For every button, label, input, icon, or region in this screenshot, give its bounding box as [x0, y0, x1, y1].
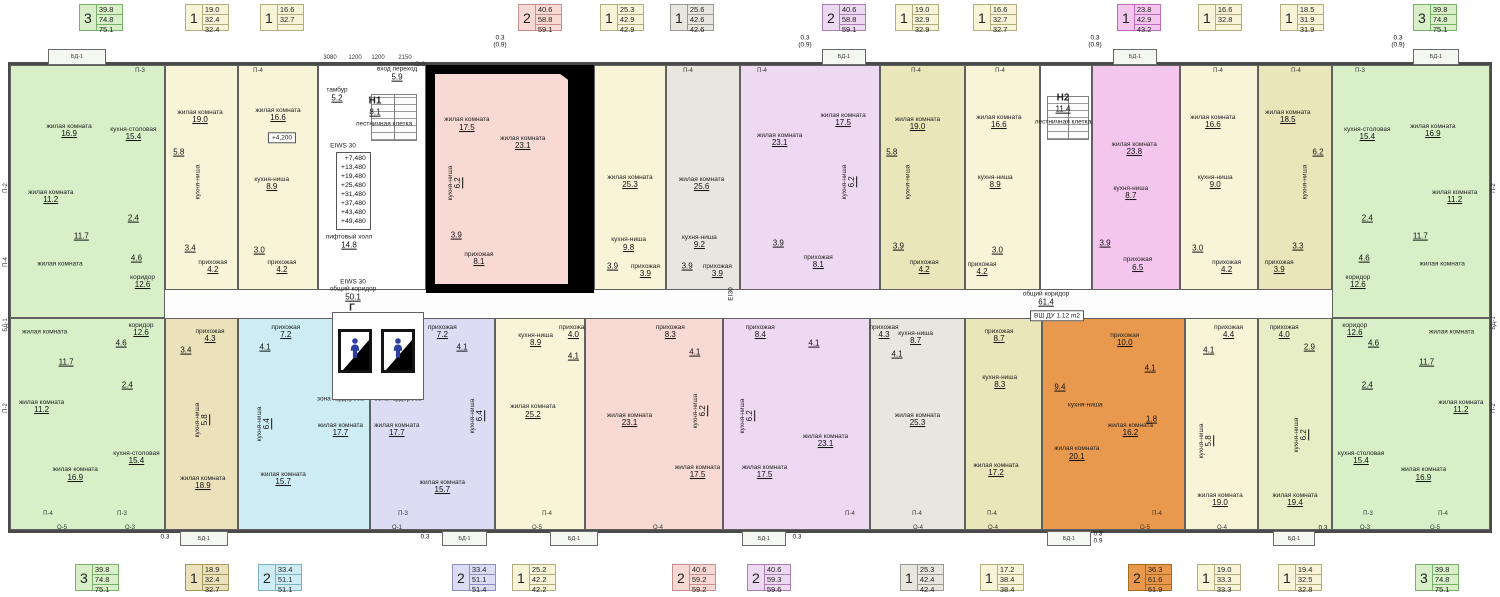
balcony-label: БД-1 [1129, 54, 1141, 60]
wall-mark: 2150 [398, 55, 411, 61]
badge-area-value: 40.6 [765, 565, 790, 575]
badge-area-value: 75.1 [1433, 585, 1458, 594]
area-value: 5.8 [201, 402, 210, 437]
room-label: 11.7 [59, 359, 74, 368]
apartment-badge[interactable]: 339.874.875.1 [75, 564, 119, 591]
area-value: 25.2 [510, 411, 555, 420]
room-label: 3.4 [180, 346, 191, 355]
label-text: 0.3 [1318, 524, 1327, 531]
label-text: 0.3 [792, 533, 801, 540]
room-label: жилая комната [37, 261, 82, 268]
wall-mark: БД-1 [3, 318, 9, 331]
area-value: 2.4 [128, 215, 139, 224]
room-label: жилая комната18.5 [1265, 109, 1310, 125]
badge-area-value: 25.6 [688, 5, 713, 15]
apartment-badge[interactable]: 116.632.732.7 [973, 4, 1017, 31]
room-label: кухня-ниша9.8 [611, 236, 646, 252]
wall-mark: О-3 [125, 525, 135, 531]
label-area: 8.1 [369, 107, 382, 116]
badge-area-value: 16.6 [1216, 5, 1241, 15]
apartment-badge[interactable]: 116.632.7 [260, 4, 304, 31]
room-label: прихожая4.2 [198, 259, 227, 275]
label-text: 0.3 [160, 533, 169, 540]
area-value: 16.6 [976, 121, 1021, 130]
plan-label: лестничная клетка [1035, 118, 1091, 125]
room-label: 5.8 [173, 149, 184, 158]
level-value: +7,480 [341, 155, 366, 164]
apartment-2k-bottom-pink[interactable]: прихожая8.34.1кухня-ниша6.2жилая комната… [585, 318, 723, 530]
room-label: 11.7 [1419, 359, 1434, 368]
apartment-badge[interactable]: 236.361.661.9 [1128, 564, 1172, 591]
area-value: 4.1 [1145, 365, 1156, 374]
label-area: 5.9 [377, 73, 417, 82]
wall-mark: П-3 [117, 511, 127, 517]
room-label: 2.4 [122, 382, 133, 391]
wall-mark: О-5 [532, 525, 542, 531]
wall-mark: П-4 [1152, 511, 1162, 517]
wall-mark: П-4 [1291, 68, 1301, 74]
apartment-badge[interactable]: 125.342.942.9 [600, 4, 644, 31]
wall-mark: О-3 [1360, 525, 1370, 531]
room-label: жилая комната17.5 [675, 464, 720, 480]
room-label: 4.6 [116, 340, 127, 349]
room-label: прихожая7.2 [428, 324, 457, 340]
area-value: 3.9 [1265, 266, 1294, 275]
area-value: 17.7 [318, 429, 363, 438]
label-text: лестничная клетка [1035, 118, 1091, 125]
apartment-badge[interactable]: 119.032.932.9 [895, 4, 939, 31]
badge-area-values: 23.842.943.2 [1134, 5, 1160, 30]
apartment-1k-top-magenta[interactable]: жилая комната23.8кухня-ниша8.73.9прихожа… [1092, 65, 1180, 290]
badge-area-value: 51.1 [276, 575, 301, 585]
plan-label: общий коридор50.1 [330, 286, 377, 303]
room-label: прихожая8.3 [656, 324, 685, 340]
room-label: жилая комната16.9 [1410, 123, 1455, 139]
wall-mark: П-4 [683, 68, 693, 74]
room-label: кухня-ниша8.9 [254, 176, 289, 192]
apartment-badge[interactable]: 123.842.943.2 [1117, 4, 1161, 31]
area-value: 15.4 [113, 457, 159, 466]
badge-area-value: 58.8 [840, 15, 865, 25]
apartment-1k-top-253[interactable]: жилая комната25.3кухня-ниша9.83.9прихожа… [594, 65, 666, 290]
label-text: EIWS 30 [330, 142, 356, 149]
area-value: 4.1 [689, 348, 700, 357]
room-label: прихожая6.5 [1123, 257, 1152, 273]
apartment-1k-top-166c[interactable]: жилая комната16.6кухня-ниша9.03.0прихожа… [1180, 65, 1258, 290]
room-label: прихожая8.7 [985, 328, 1014, 344]
badge-area-value: 19.0 [203, 5, 228, 15]
room-label: прихожая4.2 [1212, 259, 1241, 275]
room-label: жилая комната [1420, 261, 1465, 268]
apartment-1k-bottom-172[interactable]: прихожая8.7кухня-ниша8.3жилая комната17.… [965, 318, 1042, 530]
apartment-badge[interactable]: 125.342.442.4 [900, 564, 944, 591]
badge-area-values: 17.238.438.4 [997, 565, 1023, 590]
apartment-badge[interactable]: 240.658.859.1 [518, 4, 562, 31]
area-value: 19.0 [895, 123, 940, 132]
area-value: 8.7 [1113, 192, 1148, 201]
room-label: коридор12.6 [1346, 274, 1371, 290]
badge-room-count: 1 [1199, 5, 1215, 30]
apartment-badge[interactable]: 339.874.875.1 [79, 4, 123, 31]
apartment-badge[interactable]: 233.451.151.4 [452, 564, 496, 591]
room-label: жилая комната16.9 [1401, 466, 1446, 482]
balcony: БД-1 [48, 49, 106, 65]
label-text: H2 [1056, 93, 1071, 105]
balcony: БД-1 [1047, 531, 1091, 546]
area-value: 3.4 [185, 244, 196, 253]
elevator-icon[interactable] [338, 329, 372, 373]
room-label: 3.9 [893, 242, 904, 251]
apartment-1k-top-19b[interactable]: жилая комната19.05.8кухня-ниша3.9прихожа… [880, 65, 965, 290]
label-area: (0.9) [1391, 42, 1404, 49]
label-text: H1 [369, 96, 382, 108]
room-label: прихожая7.2 [271, 324, 300, 340]
apartment-1k-bottom-19[interactable]: прихожая4.44.1кухня-ниша5.8жилая комната… [1185, 318, 1258, 530]
badge-area-value: 40.6 [690, 565, 715, 575]
room-label: 3.0 [992, 247, 1003, 256]
area-value: 4.2 [910, 266, 939, 275]
apartment-badge[interactable]: 125.242.242.2 [512, 564, 556, 591]
badge-room-count: 2 [519, 5, 535, 30]
room-name: жилая комната [1420, 261, 1465, 268]
room-label: жилая комната [22, 328, 67, 335]
apartment-badge[interactable]: 116.632.8 [1198, 4, 1242, 31]
room-label: кухня-ниша8.7 [1113, 185, 1148, 201]
apartment-3k-bottom-right[interactable]: коридор12.64.6жилая комната11.72.4жилая … [1332, 318, 1490, 530]
apartment-badge[interactable]: 117.238.438.4 [980, 564, 1024, 591]
room-label: 4.1 [259, 344, 270, 353]
apartment-2k-top-purple[interactable]: жилая комната23.1жилая комната17.5кухня-… [740, 65, 880, 290]
apartment-2k-bottom-violet[interactable]: прихожая8.44.1кухня-ниша6.2жилая комната… [723, 318, 870, 530]
apartment-1k-top-166b[interactable]: жилая комната16.6кухня-ниша8.93.0прихожа… [965, 65, 1040, 290]
label-text: лифтовый холл [326, 234, 373, 241]
badge-room-count: 2 [823, 5, 839, 30]
badge-area-value: 32.8 [1296, 585, 1321, 594]
room-label: жилая комната18.9 [180, 475, 225, 491]
room-label: жилая комната19.0 [1197, 492, 1242, 508]
badge-area-values: 33.451.151.1 [275, 565, 301, 590]
area-value: 23.1 [757, 139, 802, 148]
room-label: 4.6 [1368, 340, 1379, 349]
badge-room-count: 1 [896, 5, 912, 30]
area-value: 4.6 [131, 255, 142, 264]
balcony-label: БД-1 [458, 536, 470, 542]
area-value: 9.8 [611, 244, 646, 253]
apartment-1k-top-19[interactable]: жилая комната19.05.8кухня-ниша3.4прихожа… [165, 65, 238, 290]
area-value: 4.2 [968, 268, 997, 277]
balcony: БД-1 [1273, 531, 1315, 546]
badge-area-value: 42.4 [918, 585, 943, 594]
level-value: +31,480 [341, 191, 366, 200]
balcony: БД-1 [180, 531, 228, 546]
apartment-1k-bottom-253[interactable]: прихожая4.34.1кухня-ниша8.7жилая комната… [870, 318, 965, 530]
badge-area-value: 38.4 [998, 575, 1023, 585]
area-value: 8.1 [464, 258, 493, 267]
area-value: 18.9 [180, 482, 225, 491]
label-area: 61.4 [1023, 298, 1070, 307]
apartment-1k-bottom-tan[interactable]: прихожая4.33.4кухня-ниша5.8жилая комната… [165, 318, 238, 530]
apartment-3k-top-right[interactable]: кухня-столовая15.4жилая комната16.9жилая… [1332, 65, 1490, 318]
badge-room-count: 1 [671, 5, 687, 30]
badge-area-value: 33.3 [1215, 575, 1240, 585]
room-label: кухня-ниша6.2 [739, 398, 755, 433]
area-value: 6.2 [454, 166, 463, 201]
apartment-badge[interactable]: 339.874.875.1 [1415, 564, 1459, 591]
area-value: 15.4 [1344, 133, 1390, 142]
area-value: 4.2 [1212, 266, 1241, 275]
room-name: жилая комната [1429, 328, 1474, 335]
label-area: 11.4 [1056, 104, 1071, 113]
room-label: прихожая4.0 [559, 324, 588, 340]
badge-area-value: 40.6 [840, 5, 865, 15]
badge-room-count: 2 [1129, 565, 1145, 590]
plan-label: 0.3 [1318, 524, 1327, 531]
apartment-badge[interactable]: 240.659.359.6 [747, 564, 791, 591]
balcony: БД-1 [822, 49, 866, 65]
apartment-1k-top-166a[interactable]: жилая комната16.6кухня-ниша8.93.0прихожа… [238, 65, 318, 290]
room-label: 3.0 [1192, 244, 1203, 253]
room-label: жилая комната11.2 [1438, 399, 1483, 415]
wall-mark: П-2 [1491, 403, 1497, 413]
room-label: 4.1 [456, 344, 467, 353]
room-name: кухня-ниша [905, 165, 912, 200]
wall-mark: П-4 [1438, 511, 1448, 517]
badge-room-count: 1 [901, 565, 917, 590]
badge-area-value: 31.9 [1298, 15, 1323, 25]
apartment-1k-top-185[interactable]: жилая комната18.56.2кухня-ниша3.3прихожа… [1258, 65, 1332, 290]
area-value: 11.7 [74, 232, 89, 241]
wall-mark: О-1 [392, 525, 402, 531]
room-label: кухня-ниша [905, 165, 912, 200]
room-label: кухня-ниша6.2 [447, 166, 463, 201]
wall-mark: П-4 [43, 511, 53, 517]
area-value: 4.1 [259, 344, 270, 353]
room-label: 2.4 [1362, 215, 1373, 224]
area-value: 3.3 [1292, 242, 1303, 251]
room-label: кухня-столовая15.4 [113, 450, 159, 466]
room-label: жилая комната17.2 [973, 462, 1018, 478]
apartment-badge[interactable]: 119.432.532.8 [1278, 564, 1322, 591]
plan-label: 0.3(0.9) [798, 35, 811, 50]
badge-area-values: 36.361.661.9 [1145, 565, 1171, 590]
badge-area-values: 25.642.642.6 [687, 5, 713, 30]
area-value: 17.7 [374, 429, 419, 438]
badge-area-values: 18.531.931.9 [1297, 5, 1323, 30]
badge-room-count: 3 [1414, 5, 1430, 30]
area-value: 4.1 [456, 344, 467, 353]
wall-mark: П-3 [1363, 511, 1373, 517]
plan-label: Г [349, 302, 355, 314]
room-label: 3.9 [1099, 240, 1110, 249]
label-area: (0.9) [493, 42, 506, 49]
room-label: кухня-ниша6.4 [469, 398, 485, 433]
room-name: кухня-ниша [1068, 402, 1103, 409]
wall-mark: П-3 [398, 511, 408, 517]
apartment-badge[interactable]: 233.451.151.1 [258, 564, 302, 591]
badge-area-values: 18.932.432.7 [202, 565, 228, 590]
badge-area-values: 19.432.532.8 [1295, 565, 1321, 590]
badge-area-value: 32.7 [203, 585, 228, 594]
area-value: 17.5 [675, 471, 720, 480]
room-label: жилая комната11.2 [19, 399, 64, 415]
plan-label: H18.1 [369, 96, 382, 117]
apartment-badge[interactable]: 125.642.642.6 [670, 4, 714, 31]
plan-label: 0.3(0.9) [493, 35, 506, 50]
balcony: БД-1 [550, 531, 598, 546]
room-label: жилая комната15.7 [420, 479, 465, 495]
apartment-badge[interactable]: 240.658.859.1 [822, 4, 866, 31]
badge-area-value: 25.3 [918, 565, 943, 575]
area-value: 23.1 [607, 419, 652, 428]
room-label: кухня-столовая15.4 [110, 126, 156, 142]
badge-area-values: 39.874.875.1 [96, 5, 122, 30]
badge-area-value: 59.2 [690, 585, 715, 594]
apartment-1k-bottom-194[interactable]: прихожая4.02.9кухня-ниша6.2жилая комната… [1258, 318, 1332, 530]
room-label: прихожая3.9 [631, 263, 660, 279]
apartment-badge[interactable]: 339.874.875.1 [1413, 4, 1457, 31]
badge-area-value: 32.7 [991, 25, 1016, 34]
wall-mark: П-4 [3, 257, 9, 267]
apartment-badge[interactable]: 118.932.432.7 [185, 564, 229, 591]
badge-area-value: 42.9 [618, 15, 643, 25]
badge-area-value: 33.4 [470, 565, 495, 575]
area-value: 9.4 [1054, 384, 1065, 393]
room-label: кухня-столовая15.4 [1344, 126, 1390, 142]
elevator-icon[interactable] [381, 329, 415, 373]
badge-area-value: 74.8 [93, 575, 118, 585]
room-label: кухня-ниша [1068, 402, 1103, 409]
area-value: 4.0 [559, 331, 588, 340]
apartment-badge[interactable]: 118.531.931.9 [1280, 4, 1324, 31]
room-label: 4.1 [891, 350, 902, 359]
room-label: 3.9 [451, 231, 462, 240]
label-text: общий коридор [330, 286, 377, 293]
plan-label: 0.3(0.9) [1391, 35, 1404, 50]
room-label: кухня-ниша9.0 [1198, 174, 1233, 190]
apartment-2k-top-highlight[interactable]: жилая комната17.5жилая комната23.1кухня-… [426, 65, 594, 293]
badge-room-count: 2 [673, 565, 689, 590]
badge-area-value: 32.7 [991, 15, 1016, 25]
room-label: жилая комната16.9 [53, 466, 98, 482]
wall-mark: П-3 [1355, 68, 1365, 74]
area-value: 5.8 [173, 149, 184, 158]
room-label: прихожая4.2 [910, 259, 939, 275]
area-value: 11.2 [1438, 406, 1483, 415]
room-label: жилая комната11.2 [28, 189, 73, 205]
apartment-badge[interactable]: 119.033.333.3 [1197, 564, 1241, 591]
apartment-badge[interactable]: 240.659.259.2 [672, 564, 716, 591]
balcony: БД-1 [742, 531, 786, 546]
plan-label: 0.30.9 [1093, 531, 1102, 546]
area-value: 5.8 [886, 149, 897, 158]
wall-mark: П-4 [912, 511, 922, 517]
area-value: 16.9 [46, 130, 91, 139]
room-label: 3.9 [773, 240, 784, 249]
room-label: прихожая4.4 [1214, 324, 1243, 340]
plan-label: общий коридор61.4 [1023, 291, 1070, 308]
badge-area-value: 18.5 [1298, 5, 1323, 15]
area-value: 16.2 [1108, 429, 1153, 438]
apartment-1k-top-256[interactable]: жилая комната25.6кухня-ниша9.23.9прихожа… [666, 65, 740, 290]
badge-area-value: 59.3 [765, 575, 790, 585]
badge-area-value: 61.9 [1146, 585, 1171, 594]
area-value: 17.5 [742, 471, 787, 480]
badge-area-values: 40.659.359.6 [764, 565, 790, 590]
badge-area-values: 40.658.859.1 [535, 5, 561, 30]
label-text: 0.3 [493, 35, 506, 42]
badge-room-count: 1 [513, 565, 529, 590]
apartment-3k-bottom-left[interactable]: жилая комнатакоридор12.64.611.72.4жилая … [10, 318, 165, 530]
area-value: 4.1 [891, 350, 902, 359]
area-value: 12.6 [129, 329, 154, 338]
room-label: 5.8 [886, 149, 897, 158]
room-label: прихожая10.0 [1110, 332, 1139, 348]
badge-area-value: 74.8 [1433, 575, 1458, 585]
badge-area-value: 75.1 [97, 25, 122, 34]
area-value: 6.2 [1300, 417, 1309, 452]
badge-room-count: 3 [1416, 565, 1432, 590]
area-value: 23.8 [1112, 148, 1157, 157]
area-value: 16.9 [53, 474, 98, 483]
room-label: 9.4 [1054, 384, 1065, 393]
badge-area-value: 38.4 [998, 585, 1023, 594]
badge-area-value: 19.4 [1296, 565, 1321, 575]
wall-mark: П-4 [757, 68, 767, 74]
badge-area-value: 39.8 [1433, 565, 1458, 575]
room-label: кухня-ниша6.4 [256, 407, 272, 442]
badge-area-value: 32.5 [1296, 575, 1321, 585]
badge-room-count: 1 [601, 5, 617, 30]
wall-mark: О-4 [1217, 525, 1227, 531]
apartment-1k-bottom-252[interactable]: кухня-ниша8.9прихожая4.04.1жилая комната… [495, 318, 585, 530]
area-value: 7.2 [271, 331, 300, 340]
area-value: 12.6 [1346, 281, 1371, 290]
badge-area-value: 25.2 [530, 565, 555, 575]
area-value: 3.9 [451, 231, 462, 240]
area-value: 16.9 [1401, 474, 1446, 483]
wall-mark: 1200 [371, 55, 384, 61]
badge-area-value: 59.2 [690, 575, 715, 585]
room-label: 11.7 [1413, 232, 1428, 241]
room-label: 2.4 [1362, 382, 1373, 391]
room-label: 11.7 [74, 232, 89, 241]
apartment-2k-bottom-orange[interactable]: прихожая10.04.11.89.4кухня-нишажилая ком… [1042, 318, 1185, 530]
room-label: кухня-ниша6.2 [692, 394, 708, 429]
wall-mark: П-4 [987, 511, 997, 517]
area-value: 6.2 [1312, 149, 1323, 158]
label-text: +4,200 [272, 134, 292, 141]
room-label: кухня-ниша [1302, 165, 1309, 200]
badge-area-value: 39.8 [93, 565, 118, 575]
area-value: 17.5 [820, 119, 865, 128]
room-label: жилая комната23.1 [607, 412, 652, 428]
room-label: жилая комната25.6 [679, 176, 724, 192]
area-value: 4.6 [116, 340, 127, 349]
room-label: жилая комната25.3 [607, 174, 652, 190]
label-text: ВШ ДУ 1.12 m2 [1034, 312, 1080, 319]
balcony-label: БД-1 [1288, 536, 1300, 542]
balcony: БД-1 [442, 531, 487, 546]
badge-area-value [1216, 25, 1241, 30]
apartment-3k-top-left[interactable]: жилая комната16.9кухня-столовая15.4жилая… [10, 65, 165, 318]
apartment-badge[interactable]: 119.032.432.4 [185, 4, 229, 31]
room-label: жилая комната16.6 [1190, 114, 1235, 130]
wall-mark: П-3 [135, 68, 145, 74]
room-name: кухня-ниша [1302, 165, 1309, 200]
area-value: 8.7 [898, 337, 933, 346]
area-value: 6.4 [263, 407, 272, 442]
area-value: 16.6 [255, 114, 300, 123]
